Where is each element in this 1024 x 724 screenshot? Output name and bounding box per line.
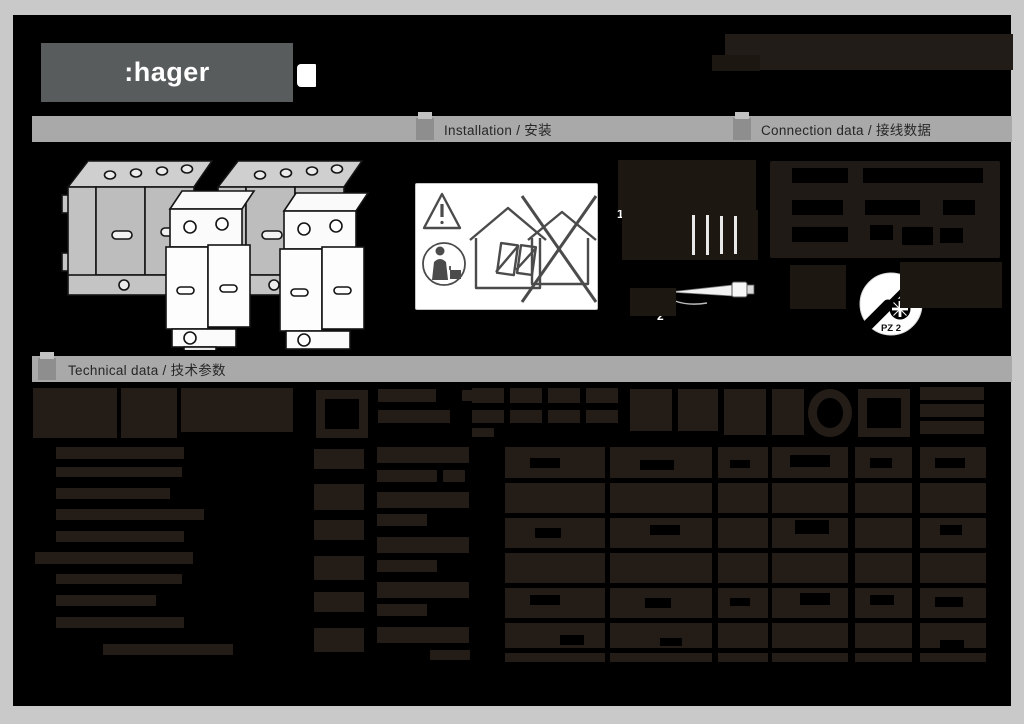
scan-block bbox=[734, 216, 737, 254]
scan-block bbox=[712, 55, 760, 71]
scan-block bbox=[940, 228, 963, 243]
scan-block bbox=[900, 262, 1002, 308]
wire-stripping-figure bbox=[13, 15, 1011, 706]
scan-block bbox=[792, 168, 848, 183]
scan-block bbox=[622, 210, 758, 260]
scan-block bbox=[720, 216, 723, 254]
scan-block bbox=[706, 215, 709, 255]
scan-block bbox=[630, 288, 676, 316]
scan-block bbox=[792, 227, 848, 242]
scan-block bbox=[943, 200, 975, 215]
scan-block bbox=[902, 227, 933, 245]
scan-block bbox=[792, 200, 843, 215]
scan-block bbox=[870, 225, 893, 240]
scan-block bbox=[790, 265, 846, 309]
scan-block bbox=[863, 168, 983, 183]
page-content-area: :hager Installation / 安装 Connection data… bbox=[13, 15, 1011, 706]
leaflet-page: :hager Installation / 安装 Connection data… bbox=[0, 0, 1024, 724]
scan-block bbox=[692, 215, 695, 255]
scan-block bbox=[618, 160, 756, 210]
scan-block bbox=[865, 200, 920, 215]
